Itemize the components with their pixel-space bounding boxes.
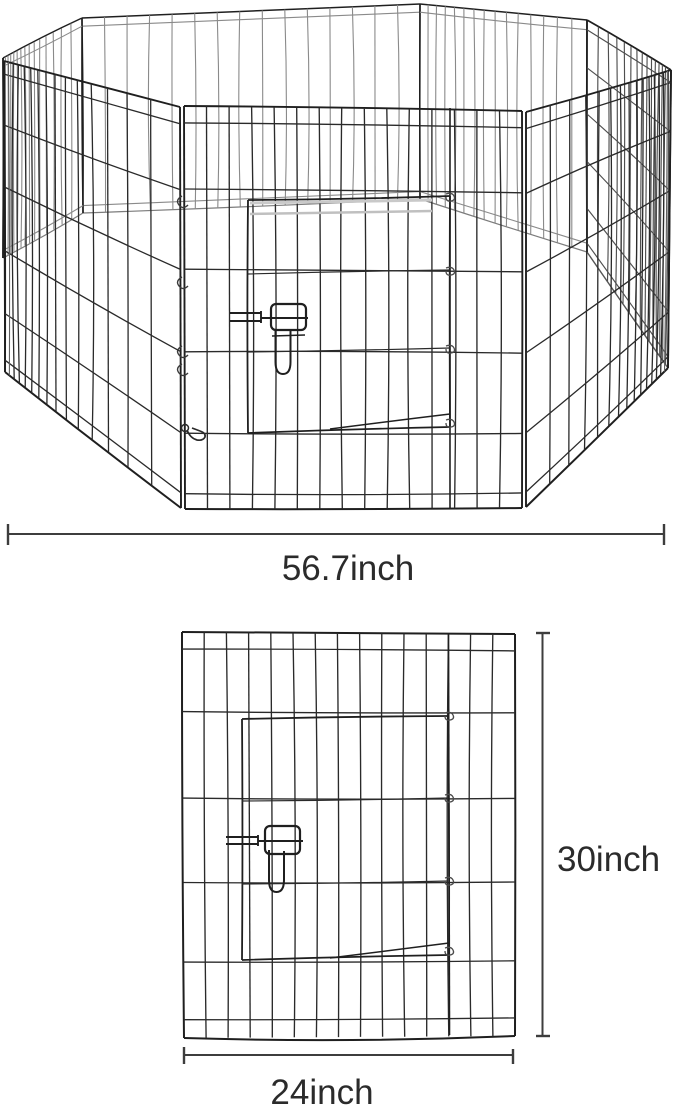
svg-text:56.7inch: 56.7inch — [282, 549, 414, 588]
svg-text:24inch: 24inch — [270, 1073, 373, 1107]
svg-text:30inch: 30inch — [557, 840, 660, 879]
